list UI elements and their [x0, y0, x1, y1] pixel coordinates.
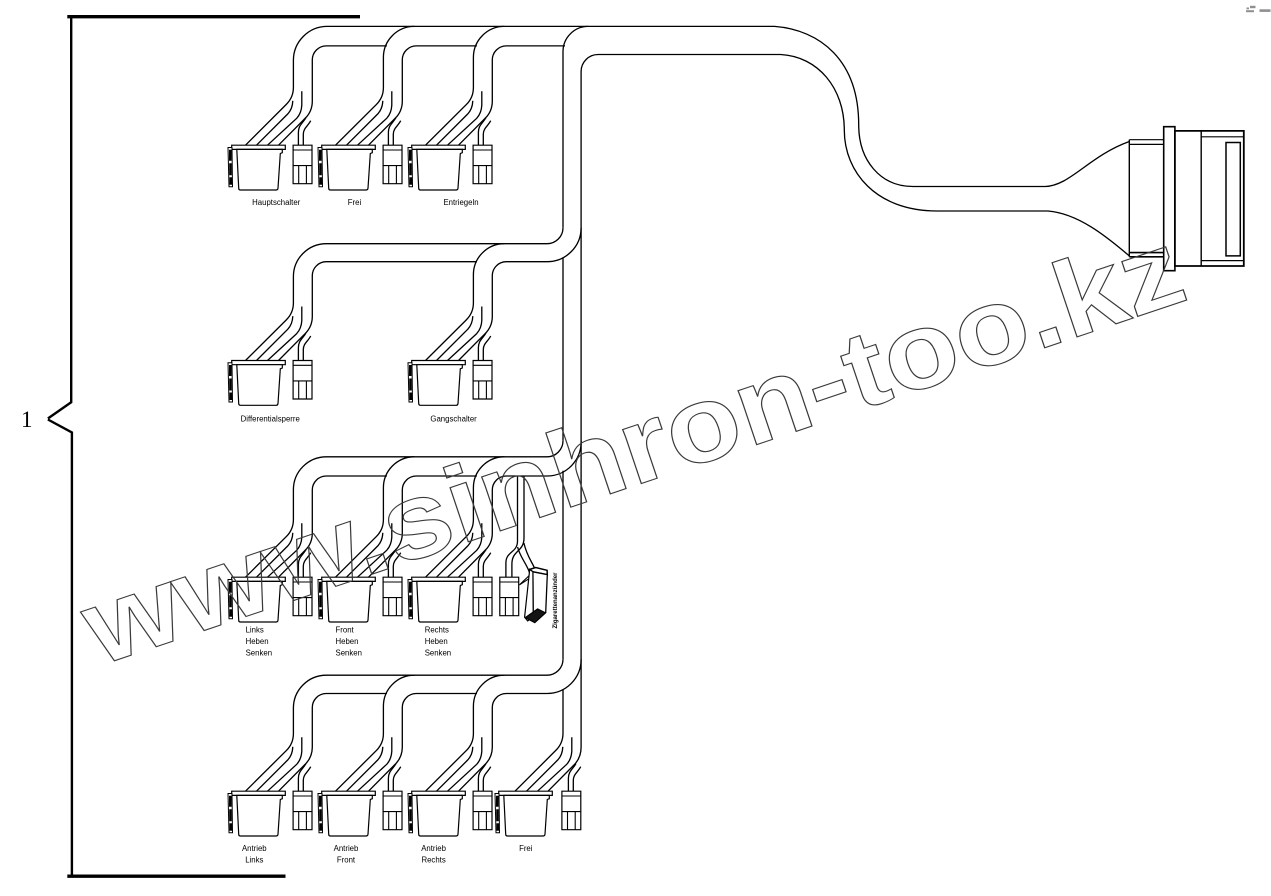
svg-text:Entriegeln: Entriegeln [443, 198, 478, 207]
svg-text:Rechts: Rechts [421, 855, 445, 864]
svg-text:Hauptschalter: Hauptschalter [252, 198, 301, 207]
svg-text:Front: Front [336, 626, 355, 635]
svg-text:Heben: Heben [425, 637, 448, 646]
svg-text:Differentialsperre: Differentialsperre [241, 415, 300, 424]
svg-text:Senken: Senken [425, 649, 451, 658]
svg-text:Links: Links [245, 855, 263, 864]
svg-text:Front: Front [337, 855, 356, 864]
svg-text:Antrieb: Antrieb [242, 844, 267, 853]
svg-text:1: 1 [21, 407, 33, 432]
svg-text:Zigarettenanzünder: Zigarettenanzünder [552, 572, 559, 629]
svg-text:Senken: Senken [336, 649, 362, 658]
svg-text:Antrieb: Antrieb [334, 844, 359, 853]
svg-text:Heben: Heben [336, 637, 359, 646]
svg-text:Antrieb: Antrieb [421, 844, 446, 853]
svg-text:Gangschalter: Gangschalter [430, 415, 477, 424]
svg-text:Senken: Senken [246, 649, 272, 658]
svg-text:Frei: Frei [348, 198, 362, 207]
svg-text:Frei: Frei [519, 844, 533, 853]
svg-text:Rechts: Rechts [425, 626, 449, 635]
